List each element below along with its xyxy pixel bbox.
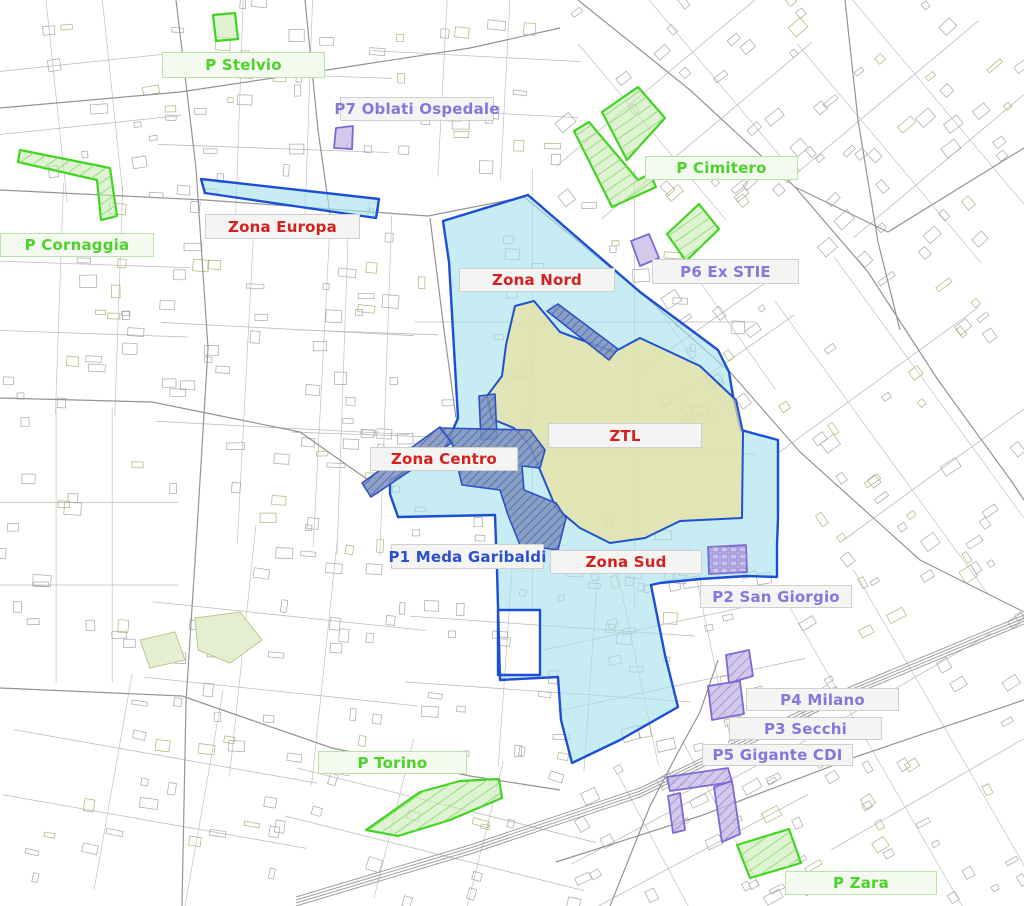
area-p6-area <box>631 234 659 266</box>
area-p4-area-1 <box>726 650 753 683</box>
area-p-cornaggia-area <box>18 150 117 220</box>
zone-overlays <box>18 13 801 878</box>
map: P StelvioP7 Oblati OspedaleP CimiteroP C… <box>0 0 1024 906</box>
area-zona-europa <box>201 179 379 218</box>
area-p-torino-area <box>366 779 502 836</box>
area-p7-area <box>334 126 353 149</box>
area-p5-area-3 <box>668 793 685 833</box>
area-p5-area-2 <box>714 781 740 842</box>
area-p4-area-2 <box>708 681 744 720</box>
area-p-stelvio-area <box>213 13 238 41</box>
area-p-zara-area <box>737 829 801 878</box>
area-p2-area <box>708 545 747 574</box>
map-canvas[interactable] <box>0 0 1024 906</box>
